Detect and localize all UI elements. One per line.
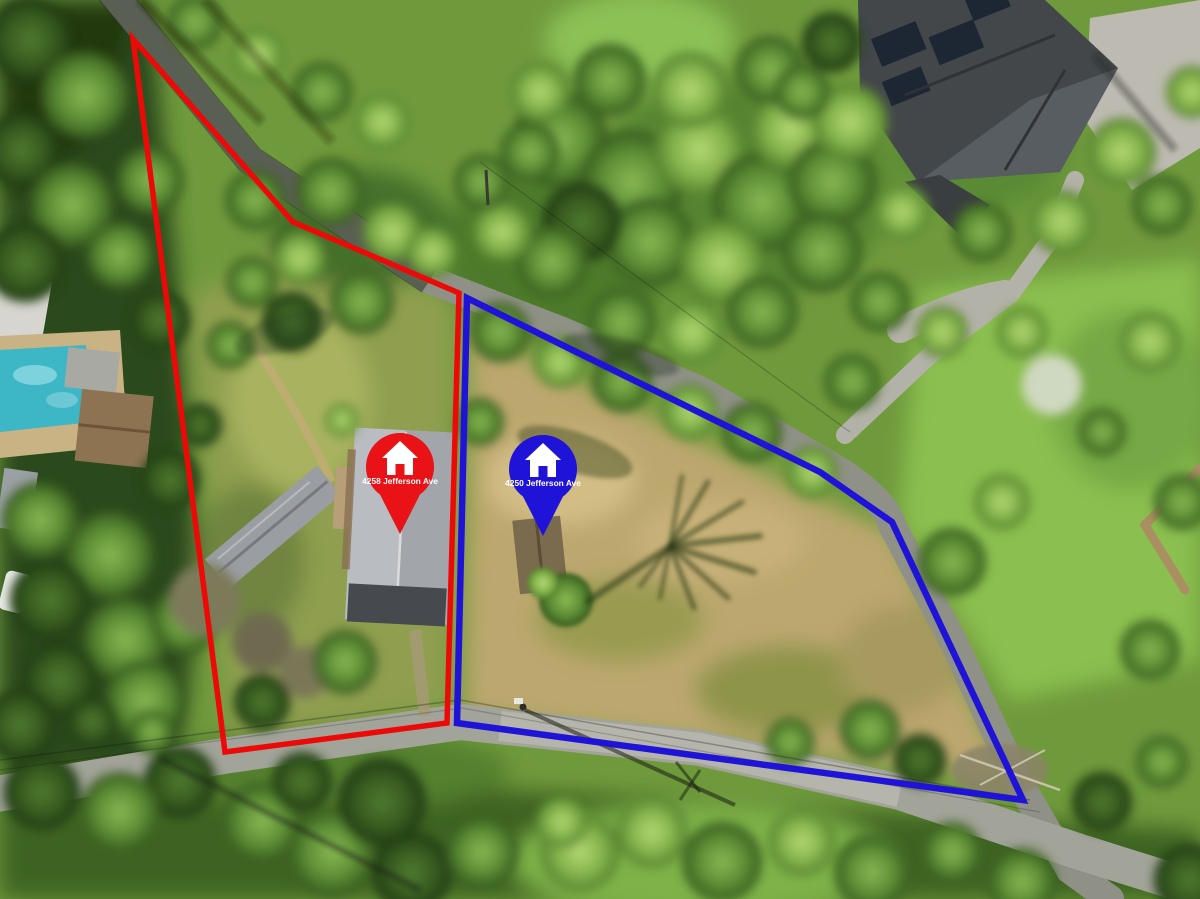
gray-roof-shed (64, 347, 120, 392)
utility-pole (520, 704, 527, 711)
pin-label: 4258 Jefferson Ave (362, 476, 438, 486)
pool-highlight (46, 392, 78, 408)
utility-pole (486, 170, 488, 205)
pin-label: 4250 Jefferson Ave (505, 478, 581, 488)
aerial-scene: 4258 Jefferson Ave 4250 Jefferson Ave (0, 0, 1200, 899)
pool-highlight (13, 365, 57, 385)
bush (527, 567, 559, 599)
aerial-photo: 4258 Jefferson Ave 4250 Jefferson Ave (0, 0, 1200, 899)
